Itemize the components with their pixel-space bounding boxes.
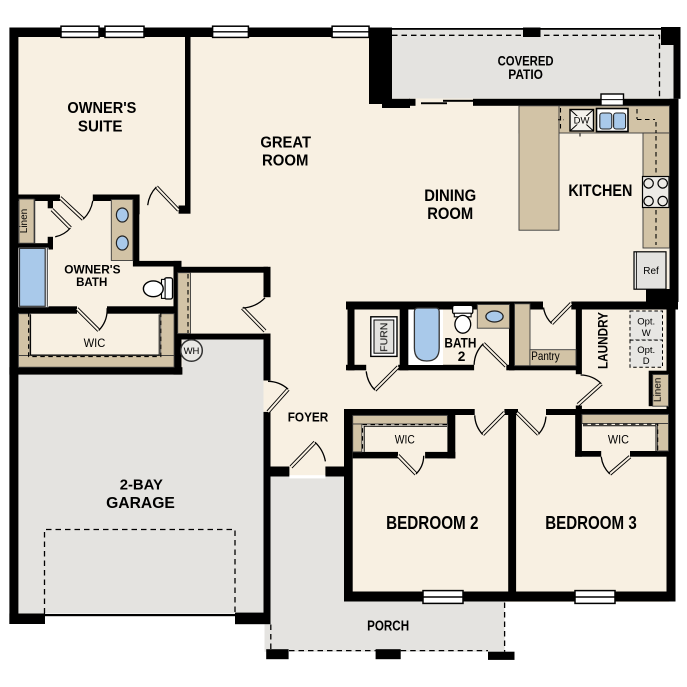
svg-text:BEDROOM 2: BEDROOM 2 — [386, 512, 478, 533]
svg-text:DINING: DINING — [424, 187, 476, 205]
svg-text:BEDROOM 3: BEDROOM 3 — [545, 512, 637, 533]
svg-text:Opt.: Opt. — [637, 345, 655, 356]
svg-text:KITCHEN: KITCHEN — [568, 181, 632, 200]
svg-text:WIC: WIC — [84, 336, 106, 350]
svg-text:W: W — [642, 328, 651, 339]
svg-text:ROOM: ROOM — [262, 153, 308, 170]
svg-text:Opt.: Opt. — [637, 317, 655, 328]
svg-text:LAUNDRY: LAUNDRY — [596, 312, 611, 369]
svg-text:WIC: WIC — [608, 434, 629, 446]
svg-text:FOYER: FOYER — [288, 410, 329, 425]
svg-text:BATH: BATH — [76, 276, 107, 289]
svg-text:OWNER'S: OWNER'S — [64, 263, 120, 276]
svg-text:WIC: WIC — [395, 433, 415, 447]
svg-text:DW: DW — [574, 116, 590, 127]
svg-text:2-BAY: 2-BAY — [120, 476, 163, 493]
svg-text:Pantry: Pantry — [531, 349, 559, 363]
svg-text:OWNER'S: OWNER'S — [67, 100, 136, 117]
svg-text:FURN: FURN — [378, 323, 390, 352]
svg-text:SUITE: SUITE — [78, 119, 123, 136]
svg-text:GARAGE: GARAGE — [106, 495, 175, 512]
svg-text:Ref: Ref — [643, 266, 659, 277]
svg-text:Linen: Linen — [653, 378, 664, 402]
svg-text:Linen: Linen — [19, 209, 30, 233]
svg-text:2: 2 — [458, 349, 466, 364]
svg-text:D: D — [643, 356, 650, 367]
svg-text:WH: WH — [184, 346, 200, 357]
svg-text:PORCH: PORCH — [367, 619, 409, 635]
svg-text:GREAT: GREAT — [260, 135, 311, 152]
svg-text:ROOM: ROOM — [427, 205, 473, 223]
svg-text:PATIO: PATIO — [508, 67, 543, 82]
